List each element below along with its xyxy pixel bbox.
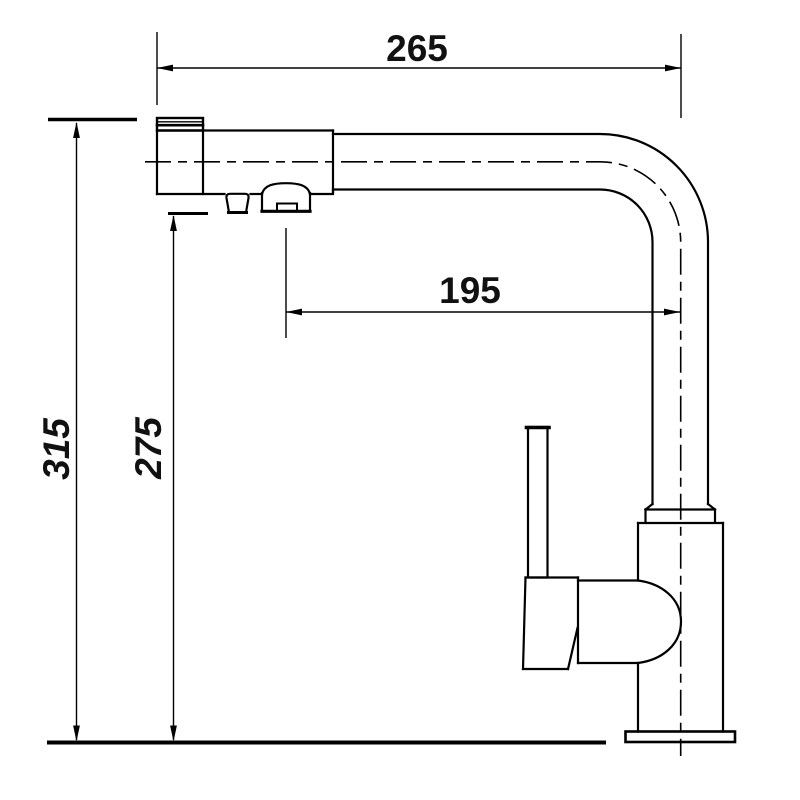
arrowhead-left-icon — [286, 309, 302, 316]
dim-label-195: 195 — [439, 270, 501, 311]
arrowhead-down-icon — [73, 726, 80, 742]
handle-base — [523, 578, 578, 670]
dim-label-265: 265 — [386, 28, 448, 69]
dimension-275: 275 — [128, 214, 208, 742]
spout-tube-and-riser — [333, 134, 708, 504]
arrowhead-up-icon — [73, 122, 80, 138]
centerline — [145, 162, 681, 756]
faucet-outline — [157, 118, 735, 742]
arrowhead-down-icon — [170, 726, 177, 742]
dimension-315: 315 — [36, 120, 137, 742]
arrowhead-right-icon — [664, 309, 680, 316]
handle-lever — [527, 427, 550, 578]
technical-drawing-sheet: 265 195 315 — [0, 0, 800, 800]
arrowhead-left-icon — [157, 65, 173, 72]
aerator-cap — [157, 118, 203, 131]
aerator-nozzle — [226, 194, 248, 213]
dim-label-315: 315 — [36, 417, 77, 480]
arrowhead-right-icon — [665, 65, 681, 72]
dim-label-275: 275 — [128, 416, 169, 480]
spray-nozzle — [262, 183, 310, 211]
faucet-dimension-drawing: 265 195 315 — [0, 0, 800, 800]
dimension-195: 195 — [286, 228, 680, 338]
dimension-265: 265 — [157, 28, 681, 118]
arrowhead-up-icon — [170, 215, 177, 231]
body-joint — [578, 581, 681, 664]
